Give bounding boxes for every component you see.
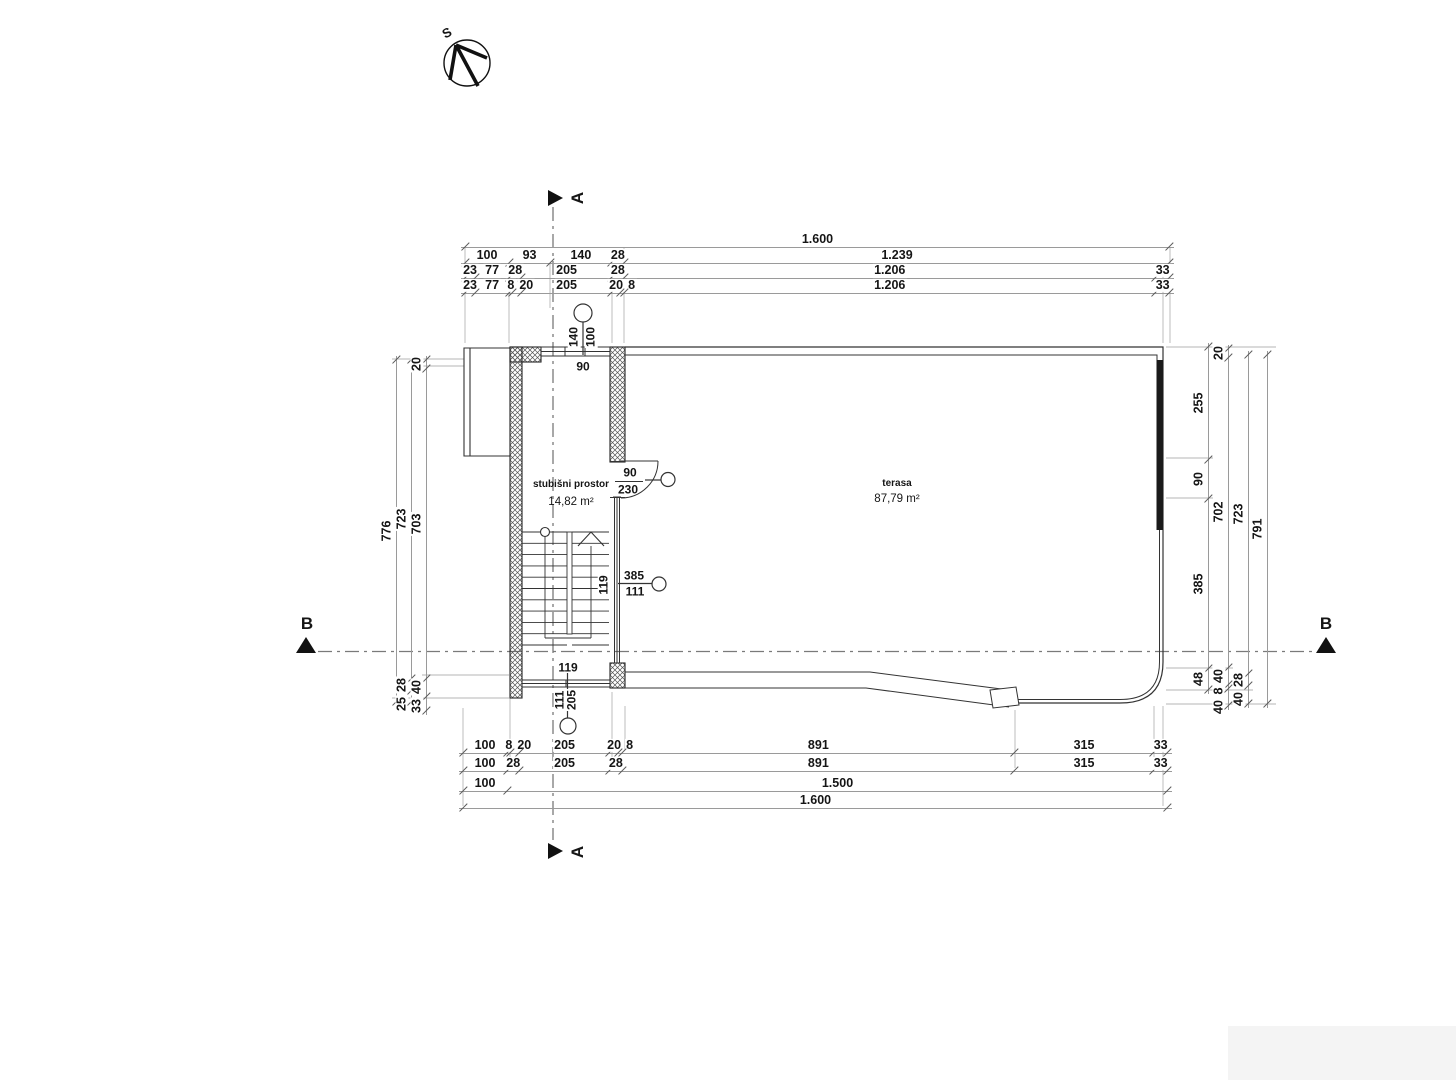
window-top: [541, 347, 610, 356]
dim-label: 315: [1072, 756, 1096, 769]
dim-label: 723: [1232, 502, 1245, 526]
dim-label: 100: [475, 248, 499, 261]
section-b-label-left: B: [300, 615, 314, 633]
room-area-stairwell: 14,82 m²: [547, 496, 594, 508]
dim-label: 33: [410, 698, 423, 715]
dim-label: 28: [609, 248, 626, 261]
dim-label: 385: [1192, 572, 1205, 596]
dim-label: 791: [1251, 517, 1264, 541]
dim-label: 1.600: [800, 232, 834, 245]
stair-up-arrow: [578, 532, 604, 546]
terrace-side-wall: [1157, 360, 1164, 530]
terrace-ramp: [625, 672, 1019, 708]
dim-label: 205: [555, 263, 579, 276]
dim-label: 28: [505, 756, 522, 769]
dim-label: 33: [1154, 278, 1171, 291]
stair-stringer: [567, 532, 572, 634]
bottom-width-label: 205: [566, 689, 579, 711]
dim-label: 100: [473, 776, 497, 789]
mid-side-label: 119: [598, 574, 611, 595]
bottom-side-label: 119: [557, 662, 578, 675]
watermark-area: [1228, 1026, 1456, 1080]
dim-label: 891: [806, 756, 830, 769]
dim-label: 48: [1192, 671, 1205, 688]
dim-label: 90: [1192, 471, 1205, 488]
dim-label: 1.500: [820, 776, 854, 789]
annex-outline: [464, 348, 510, 456]
reference-marker-circle: [560, 718, 576, 734]
dim-label: 891: [806, 738, 830, 751]
room-name-stairwell: stubišni prostor: [532, 480, 610, 491]
door-height-label: 230: [617, 484, 639, 497]
dim-label: 702: [1212, 501, 1225, 525]
section-a-arrow-bottom: [548, 843, 563, 859]
reference-marker-circle: [661, 473, 675, 487]
dim-label: 40: [1212, 698, 1225, 715]
dim-label: 703: [410, 512, 423, 536]
window-clear-label: 90: [575, 361, 590, 374]
dim-label: 140: [569, 248, 593, 261]
section-a-label-bottom: A: [569, 845, 587, 859]
terrace-outline: [625, 347, 1163, 703]
dim-label: 100: [473, 738, 497, 751]
dim-label: 20: [518, 278, 535, 291]
dim-label: 28: [607, 756, 624, 769]
dim-label: 315: [1072, 738, 1096, 751]
north-arrow-icon: [444, 40, 490, 86]
dim-label: 255: [1192, 391, 1205, 415]
dim-label: 1.206: [873, 263, 907, 276]
reference-marker-circle: [652, 577, 666, 591]
dim-label: 205: [555, 278, 579, 291]
extension-lines: [392, 247, 1276, 806]
reference-marker-circle: [574, 304, 592, 322]
dim-label: 1.600: [798, 793, 832, 806]
dim-label: 77: [484, 263, 501, 276]
dim-label: 205: [553, 738, 577, 751]
section-b-arrow-left: [296, 637, 316, 653]
dim-label: 20: [1212, 345, 1225, 362]
dim-label: 776: [380, 519, 393, 543]
stair-start-marker: [541, 528, 550, 537]
section-b-label-right: B: [1319, 615, 1333, 633]
dim-label: 28: [395, 676, 408, 693]
floor-plan-canvas: S A A B B stubišni prostor 14,82 m² tera…: [0, 0, 1456, 1080]
dim-label: 20: [516, 738, 533, 751]
window-bottom: [522, 680, 610, 687]
section-a-arrow-top: [548, 190, 563, 206]
dim-label: 205: [553, 756, 577, 769]
glazing-right: [613, 497, 621, 663]
dim-label: 1.206: [873, 278, 907, 291]
window-width-label: 140: [568, 326, 581, 348]
room-area-terrace: 87,79 m²: [873, 493, 920, 505]
dim-label: 1.239: [880, 248, 914, 261]
floor-plan-drawing: [0, 0, 1456, 1080]
door-width-label: 90: [622, 467, 637, 480]
section-a-label-top: A: [569, 191, 587, 205]
dim-label: 77: [484, 278, 501, 291]
window-sill-label: 100: [585, 326, 598, 348]
dim-label: 40: [1232, 690, 1245, 707]
ramp-end-block: [990, 687, 1019, 708]
dim-label: 40: [410, 679, 423, 696]
dim-label: 33: [1154, 263, 1171, 276]
dim-label: 33: [1152, 738, 1169, 751]
mid-opening-width-label: 385: [623, 570, 645, 583]
dim-label: 28: [609, 263, 626, 276]
dim-label: 93: [521, 248, 538, 261]
mid-opening-sill-label: 111: [625, 586, 646, 599]
room-name-terrace: terasa: [881, 479, 912, 490]
dim-label: 28: [507, 263, 524, 276]
dim-label: 20: [410, 356, 423, 373]
dim-label: 100: [473, 756, 497, 769]
dim-label: 723: [395, 507, 408, 531]
dim-label: 28: [1232, 671, 1245, 688]
section-b-arrow-right: [1316, 637, 1336, 653]
dim-label: 40: [1212, 667, 1225, 684]
dim-label: 33: [1152, 756, 1169, 769]
